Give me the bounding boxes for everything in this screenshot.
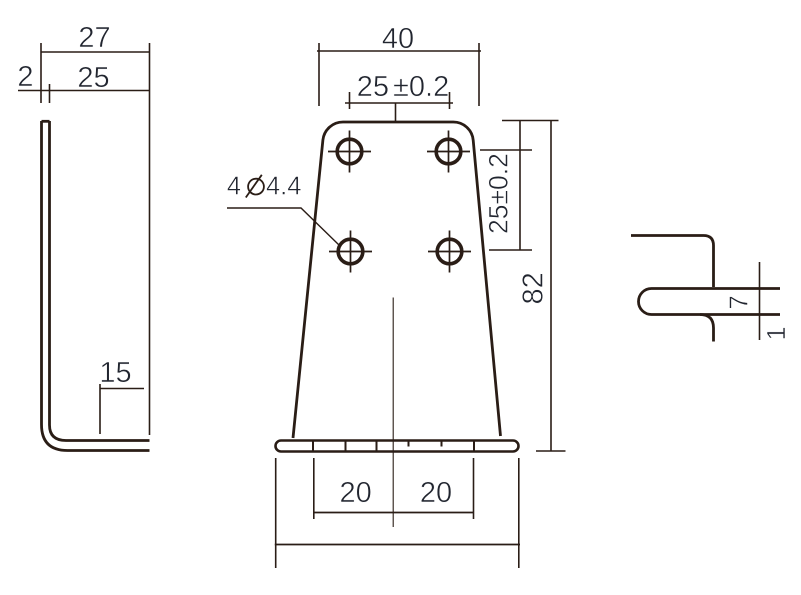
svg-text:4: 4 [227, 173, 241, 201]
svg-text:25: 25 [77, 62, 109, 94]
svg-text:15: 15 [99, 357, 131, 389]
svg-text:20: 20 [420, 477, 452, 509]
svg-text:1: 1 [763, 326, 791, 340]
svg-text:27: 27 [78, 22, 110, 54]
svg-text:7: 7 [726, 295, 754, 309]
svg-text:20: 20 [339, 477, 371, 509]
svg-text:4.4: 4.4 [266, 173, 301, 201]
svg-text:2: 2 [17, 61, 33, 93]
svg-text:82: 82 [518, 272, 550, 304]
svg-text:25±0.2: 25±0.2 [484, 153, 514, 234]
svg-text:25±0.2: 25±0.2 [357, 71, 450, 103]
